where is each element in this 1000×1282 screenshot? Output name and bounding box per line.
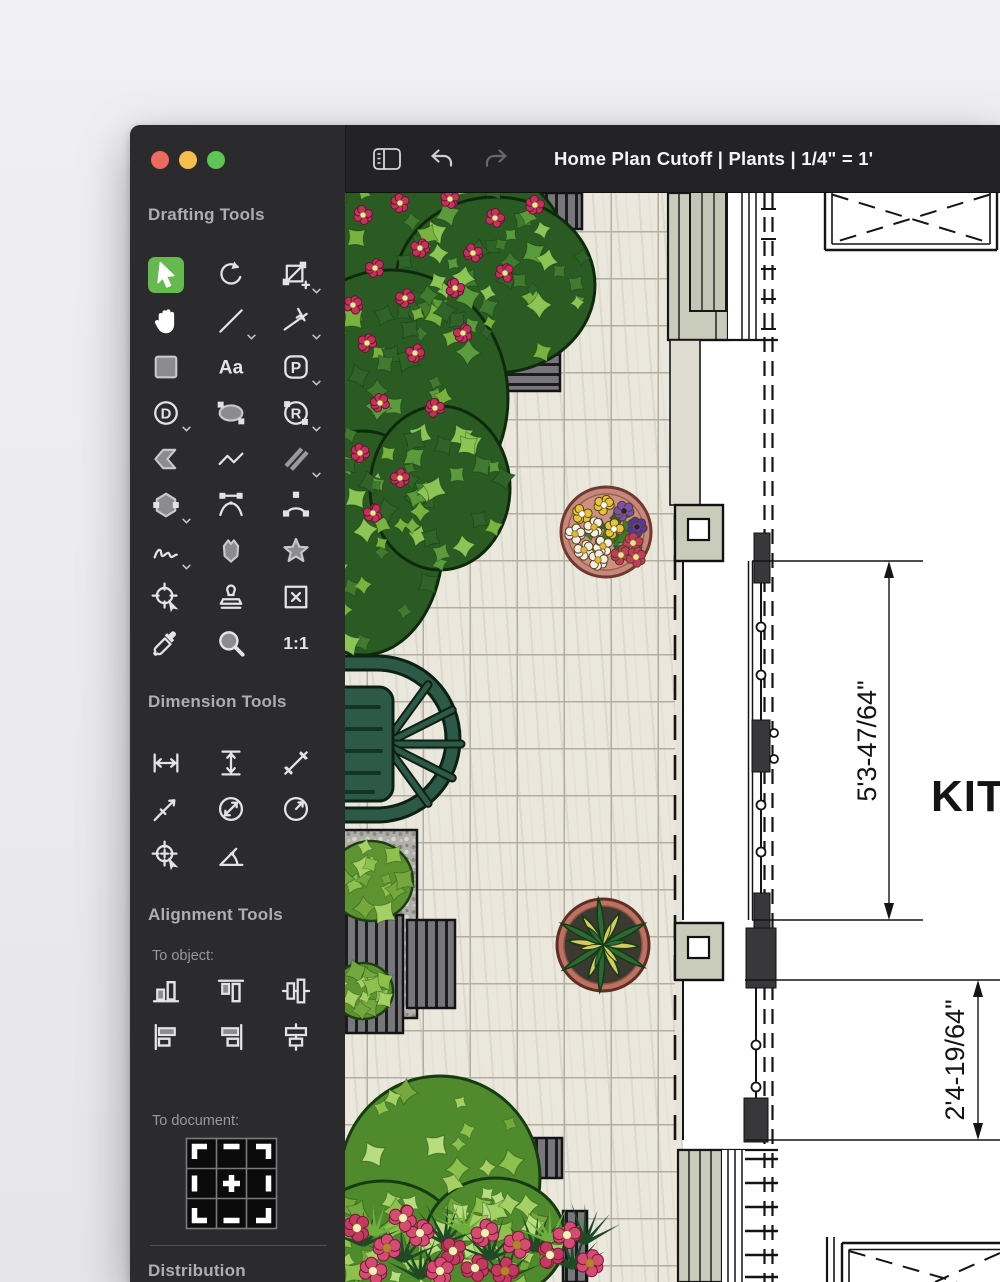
tool-actual-size[interactable]: 1:1	[278, 625, 314, 661]
svg-text:1:1: 1:1	[283, 633, 309, 653]
variant-chevron-icon	[312, 380, 321, 386]
zoom-icon	[214, 626, 248, 660]
svg-text:P: P	[291, 360, 301, 377]
snap-target-icon	[149, 580, 183, 614]
door-post-bottom[interactable]	[675, 923, 723, 980]
tool-polyline[interactable]	[213, 441, 249, 477]
align-right-icon	[214, 1020, 248, 1054]
tool-rounded-shape[interactable]: R	[278, 395, 314, 431]
blob-icon	[214, 534, 248, 568]
variant-chevron-icon	[182, 564, 191, 570]
tool-placeholder-box[interactable]	[278, 579, 314, 615]
window-bottom-right[interactable]	[827, 1237, 1000, 1282]
rectangle-icon	[149, 350, 183, 384]
variant-chevron-icon	[312, 334, 321, 340]
document-align-widget[interactable]	[185, 1137, 278, 1235]
tool-text[interactable]: Aa	[213, 349, 249, 385]
dimension-tools-grid	[148, 745, 314, 873]
drawing-canvas[interactable]: 5'3-47/64" 2'4-19/64" KITC	[345, 193, 1000, 1282]
tool-polygon[interactable]	[148, 487, 184, 523]
variant-chevron-icon	[182, 518, 191, 524]
dimension-2-label: 2'4-19/64"	[940, 999, 970, 1120]
dim-diameter-icon	[214, 792, 248, 826]
svg-text:R: R	[291, 407, 302, 423]
variant-chevron-icon	[247, 334, 256, 340]
tool-parametric-shape[interactable]: P	[278, 349, 314, 385]
upper-wall-siding[interactable]	[668, 193, 728, 340]
tool-line[interactable]	[213, 303, 249, 339]
tool-rotate[interactable]	[213, 257, 249, 293]
line-icon	[214, 304, 248, 338]
sidebar-divider	[150, 1245, 327, 1246]
tool-align-left[interactable]	[148, 1019, 184, 1055]
tool-dim-radius[interactable]	[278, 791, 314, 827]
sidebar: Drafting Tools AaPDR1:1 Dimension Tools …	[130, 125, 345, 1282]
stamp-icon	[214, 580, 248, 614]
wall-edge-strip	[670, 340, 700, 505]
ellipse-icon	[214, 396, 248, 430]
zoom-window-button[interactable]	[207, 151, 225, 169]
tool-dim-angle[interactable]	[213, 837, 249, 873]
svg-text:Aa: Aa	[219, 358, 244, 379]
main-area: Home Plan Cutoff | Plants | 1/4" = 1'	[345, 125, 1000, 1282]
eyedropper-icon	[149, 626, 183, 660]
window-top-right[interactable]	[825, 193, 1000, 250]
align-left-icon	[149, 1020, 183, 1054]
dim-center-mark-icon	[149, 838, 183, 872]
dim-diagonal-icon	[279, 746, 313, 780]
tool-arrow-shape[interactable]	[148, 441, 184, 477]
select-icon	[149, 258, 183, 292]
tool-zoom[interactable]	[213, 625, 249, 661]
constrained-line-icon	[279, 304, 313, 338]
tool-dynamic-shape[interactable]: D	[148, 395, 184, 431]
tool-freehand[interactable]	[148, 533, 184, 569]
variant-chevron-icon	[312, 288, 321, 294]
tool-dim-center-mark[interactable]	[148, 837, 184, 873]
double-line-icon	[279, 442, 313, 476]
dim-radius-icon	[279, 792, 313, 826]
variant-chevron-icon	[312, 426, 321, 432]
dim-angle-icon	[214, 838, 248, 872]
tool-align-top[interactable]	[213, 973, 249, 1009]
tool-snap-target[interactable]	[148, 579, 184, 615]
to-object-label: To object:	[152, 948, 214, 964]
arc-icon	[279, 488, 313, 522]
door-post-top[interactable]	[675, 505, 723, 561]
close-button[interactable]	[151, 151, 169, 169]
tool-constrained-line[interactable]	[278, 303, 314, 339]
pan-hand-icon	[149, 304, 183, 338]
tool-eyedropper[interactable]	[148, 625, 184, 661]
align-top-icon	[214, 974, 248, 1008]
variant-chevron-icon	[182, 426, 191, 432]
document-align-grid-icon	[185, 1137, 278, 1230]
align-middle-icon	[279, 974, 313, 1008]
drafting-tools-grid: AaPDR1:1	[148, 257, 314, 661]
transform-icon	[279, 258, 313, 292]
tool-star[interactable]	[278, 533, 314, 569]
polyline-icon	[214, 442, 248, 476]
variant-chevron-icon	[312, 472, 321, 478]
parametric-shape-icon: P	[279, 350, 313, 384]
tool-align-middle[interactable]	[278, 973, 314, 1009]
redo-button[interactable]	[482, 147, 510, 171]
star-icon	[279, 534, 313, 568]
titlebar: Home Plan Cutoff | Plants | 1/4" = 1'	[345, 125, 1000, 193]
sidebar-toggle-button[interactable]	[372, 146, 402, 172]
tool-dim-horizontal[interactable]	[148, 745, 184, 781]
distribution-header: Distribution	[148, 1261, 246, 1281]
app-window: Drafting Tools AaPDR1:1 Dimension Tools …	[130, 125, 1000, 1282]
polygon-icon	[149, 488, 183, 522]
tool-rectangle[interactable]	[148, 349, 184, 385]
drafting-tools-header: Drafting Tools	[148, 205, 265, 225]
alignment-object-grid	[148, 973, 314, 1055]
tool-align-center[interactable]	[278, 1019, 314, 1055]
tool-dim-diameter[interactable]	[213, 791, 249, 827]
align-bottom-icon	[149, 974, 183, 1008]
placeholder-box-icon	[279, 580, 313, 614]
tool-align-right[interactable]	[213, 1019, 249, 1055]
tool-ellipse[interactable]	[213, 395, 249, 431]
text-icon: Aa	[214, 350, 248, 384]
bezier-curve-icon	[214, 488, 248, 522]
tool-select[interactable]	[148, 257, 184, 293]
tool-dim-vertical[interactable]	[213, 745, 249, 781]
dim-horizontal-icon	[149, 746, 183, 780]
rounded-shape-icon: R	[279, 396, 313, 430]
dynamic-shape-icon: D	[149, 396, 183, 430]
freehand-icon	[149, 534, 183, 568]
document-title: Home Plan Cutoff | Plants | 1/4" = 1'	[554, 148, 873, 170]
tool-pan-hand[interactable]	[148, 303, 184, 339]
tool-double-line[interactable]	[278, 441, 314, 477]
tool-dim-offset[interactable]	[148, 791, 184, 827]
architecture-layer: 5'3-47/64" 2'4-19/64" KITC	[345, 193, 1000, 1282]
actual-size-icon: 1:1	[279, 626, 313, 660]
dim-offset-icon	[149, 792, 183, 826]
align-center-icon	[279, 1020, 313, 1054]
dim-vertical-icon	[214, 746, 248, 780]
undo-button[interactable]	[428, 147, 456, 171]
tool-stamp[interactable]	[213, 579, 249, 615]
alignment-tools-header: Alignment Tools	[148, 905, 283, 925]
tool-blob[interactable]	[213, 533, 249, 569]
svg-text:D: D	[161, 407, 172, 423]
dimension-1-label: 5'3-47/64"	[852, 680, 882, 801]
tool-align-bottom[interactable]	[148, 973, 184, 1009]
to-document-label: To document:	[152, 1113, 239, 1129]
tool-bezier-curve[interactable]	[213, 487, 249, 523]
tool-dim-diagonal[interactable]	[278, 745, 314, 781]
arrow-shape-icon	[149, 442, 183, 476]
tool-transform[interactable]	[278, 257, 314, 293]
traffic-lights	[151, 151, 225, 169]
tool-arc[interactable]	[278, 487, 314, 523]
rotate-icon	[214, 258, 248, 292]
dimension-tools-header: Dimension Tools	[148, 692, 287, 712]
minimize-button[interactable]	[179, 151, 197, 169]
room-label: KITC	[931, 772, 1000, 821]
